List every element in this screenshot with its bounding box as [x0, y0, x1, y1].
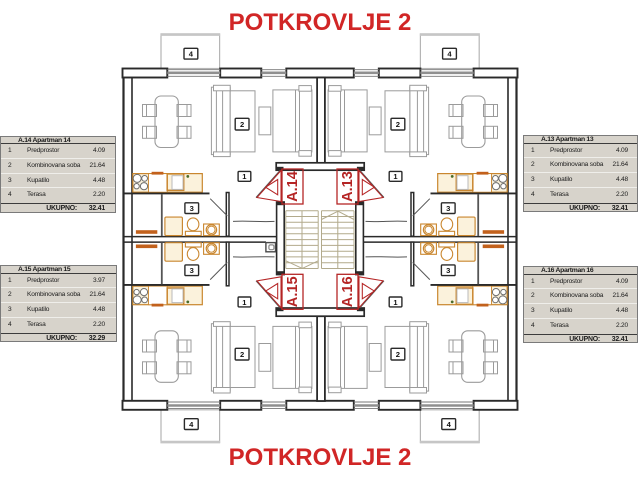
svg-text:A.13: A.13	[340, 171, 356, 202]
svg-text:3: 3	[190, 204, 194, 213]
svg-text:2: 2	[240, 350, 244, 359]
svg-text:2: 2	[240, 120, 244, 129]
svg-text:A.16: A.16	[340, 276, 356, 307]
svg-text:A.14: A.14	[285, 170, 301, 202]
svg-text:2: 2	[396, 350, 400, 359]
svg-text:2: 2	[396, 120, 400, 129]
svg-text:3: 3	[446, 266, 450, 275]
svg-text:A.15: A.15	[285, 276, 301, 307]
svg-text:3: 3	[190, 266, 194, 275]
svg-text:3: 3	[446, 204, 450, 213]
